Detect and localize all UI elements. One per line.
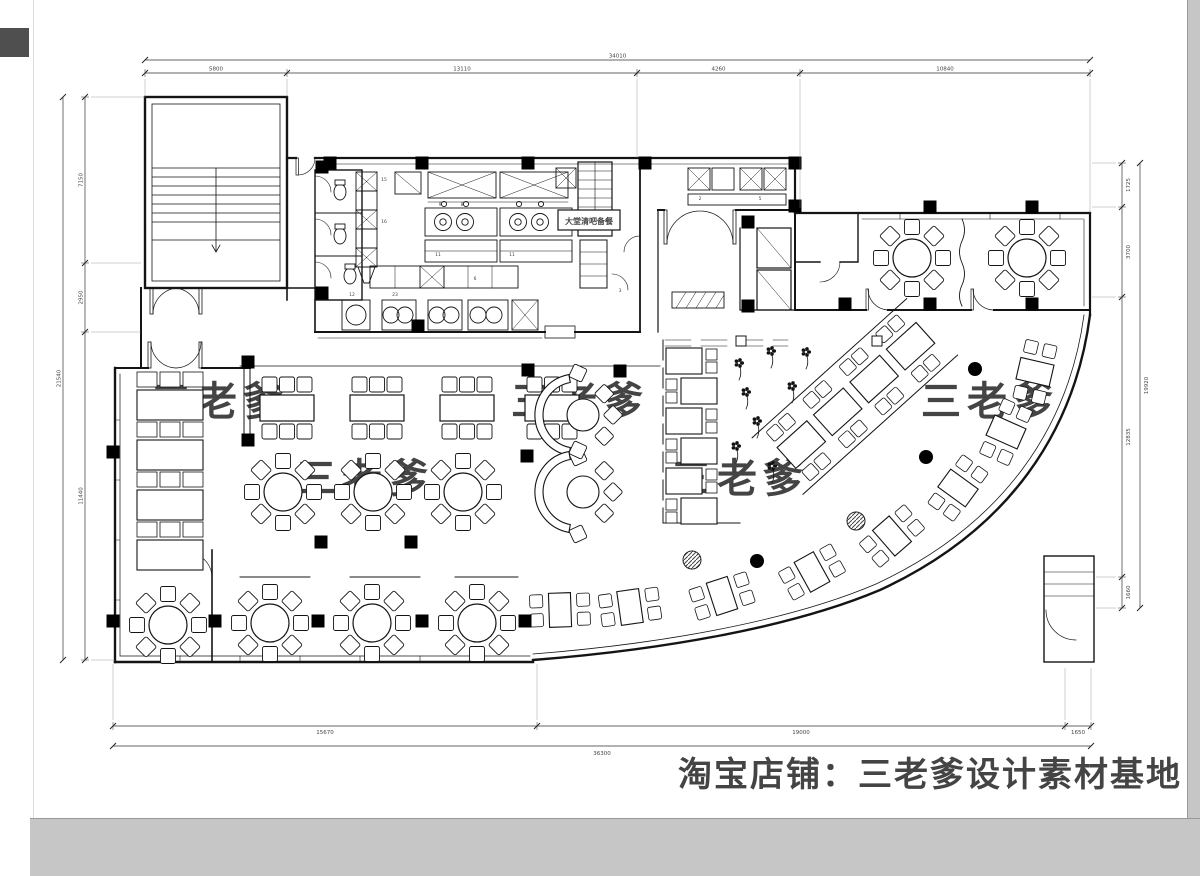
column-square bbox=[242, 356, 255, 369]
svg-text:21540: 21540 bbox=[57, 369, 63, 387]
half-round-booth bbox=[535, 441, 623, 544]
svg-text:23: 23 bbox=[392, 292, 398, 298]
svg-text:2950: 2950 bbox=[79, 290, 85, 304]
wall-booth bbox=[137, 472, 203, 520]
center-booth bbox=[666, 408, 717, 434]
plant bbox=[735, 358, 744, 380]
round-table bbox=[334, 585, 411, 662]
plant bbox=[742, 387, 751, 409]
svg-text:36300: 36300 bbox=[593, 751, 611, 757]
column-square bbox=[742, 300, 755, 313]
column-square bbox=[316, 161, 329, 174]
svg-text:1650: 1650 bbox=[1071, 730, 1085, 736]
round-table bbox=[335, 454, 412, 531]
desktop-bottom-strip bbox=[30, 818, 1200, 876]
column-white bbox=[736, 336, 746, 346]
floor-mat bbox=[672, 292, 724, 308]
toilet-fixture bbox=[334, 224, 346, 244]
door-leaf bbox=[150, 288, 153, 314]
wall-booth bbox=[137, 372, 203, 420]
svg-text:15: 15 bbox=[381, 177, 387, 183]
column-square bbox=[789, 200, 802, 213]
svg-text:19920: 19920 bbox=[1144, 376, 1150, 394]
center-booth bbox=[666, 438, 717, 464]
dimension-chain-h: 1567019000165036300 bbox=[110, 664, 1094, 757]
door-leaf bbox=[199, 288, 202, 314]
svg-text:11: 11 bbox=[509, 252, 515, 258]
floor-plan-drawing: 三老爹三老爹三老爹三老爹三老爹 bbox=[0, 0, 1200, 876]
column-square bbox=[416, 615, 429, 628]
plant bbox=[802, 347, 811, 369]
svg-text:5: 5 bbox=[759, 196, 762, 202]
kitchen-equipment bbox=[342, 168, 786, 330]
svg-text:2: 2 bbox=[699, 196, 702, 202]
desktop-right-strip bbox=[1187, 0, 1200, 876]
column-square bbox=[315, 536, 328, 549]
svg-text:19000: 19000 bbox=[792, 730, 810, 736]
round-table bbox=[232, 585, 309, 662]
double-door-arc bbox=[667, 211, 733, 244]
svg-text:9: 9 bbox=[439, 202, 442, 208]
curtain-divider bbox=[960, 219, 965, 306]
door-leaf bbox=[148, 342, 151, 368]
column-square bbox=[924, 201, 937, 214]
curve-booth bbox=[598, 586, 662, 628]
pass-counter bbox=[545, 326, 575, 338]
column-square bbox=[107, 446, 120, 459]
column-square bbox=[519, 615, 532, 628]
column-round bbox=[968, 362, 982, 376]
svg-text:1725: 1725 bbox=[1126, 178, 1132, 192]
wc-door-arcs bbox=[315, 176, 331, 278]
plant bbox=[767, 346, 776, 368]
toilet-fixture bbox=[334, 180, 346, 200]
wall-booth bbox=[137, 522, 203, 570]
dining-table-rect bbox=[350, 377, 404, 439]
column-square bbox=[742, 216, 755, 229]
corner-chip bbox=[0, 28, 29, 57]
column-square bbox=[839, 298, 852, 311]
svg-text:11440: 11440 bbox=[79, 487, 85, 505]
svg-text:34010: 34010 bbox=[609, 54, 627, 60]
svg-text:13110: 13110 bbox=[453, 67, 471, 73]
dining-table-rect bbox=[260, 377, 314, 439]
svg-text:3700: 3700 bbox=[1126, 245, 1132, 259]
room-label-text: 大堂清吧备餐 bbox=[565, 216, 614, 226]
round-table bbox=[439, 585, 516, 662]
svg-text:6: 6 bbox=[474, 276, 477, 282]
plant bbox=[753, 416, 762, 438]
dimension-chain-v: 715029501144021540 bbox=[57, 94, 146, 663]
svg-text:12835: 12835 bbox=[1126, 428, 1132, 446]
column-square bbox=[789, 157, 802, 170]
double-door-arc bbox=[151, 342, 201, 368]
door-leaf bbox=[664, 210, 667, 244]
column-square bbox=[1026, 201, 1039, 214]
wall-booth bbox=[137, 422, 203, 470]
curve-booth bbox=[927, 454, 990, 523]
double-door-arc bbox=[153, 288, 199, 314]
column-square bbox=[405, 536, 418, 549]
svg-text:5800: 5800 bbox=[209, 67, 223, 73]
column-square bbox=[1026, 298, 1039, 311]
svg-text:3: 3 bbox=[619, 288, 622, 294]
column-round bbox=[919, 450, 933, 464]
round-table bbox=[425, 454, 502, 531]
svg-text:15670: 15670 bbox=[316, 730, 334, 736]
service-room-wall bbox=[795, 213, 858, 262]
column-square bbox=[209, 615, 222, 628]
wok-range bbox=[425, 208, 497, 236]
shop-watermark-text: 淘宝店铺：三老爹设计素材基地 bbox=[678, 755, 1182, 795]
center-booth bbox=[666, 498, 717, 524]
center-booth bbox=[666, 378, 717, 404]
sheet-edge-line bbox=[33, 0, 34, 818]
column-round-hatched bbox=[683, 551, 701, 569]
column-square bbox=[522, 157, 535, 170]
column-square bbox=[312, 615, 325, 628]
column-square bbox=[614, 365, 627, 378]
plant bbox=[788, 381, 797, 403]
dimension-chain-v: 1725370012835166019920 bbox=[1092, 160, 1150, 611]
round-table bbox=[989, 220, 1066, 297]
column-white bbox=[872, 336, 882, 346]
round-table bbox=[130, 587, 207, 664]
stair-direction-arrow bbox=[212, 168, 220, 252]
center-booth bbox=[666, 348, 717, 374]
curve-booth bbox=[688, 571, 756, 622]
svg-text:16: 16 bbox=[381, 219, 387, 225]
door-leaf bbox=[733, 210, 736, 244]
toilet-fixture bbox=[344, 264, 356, 284]
column-square bbox=[639, 157, 652, 170]
svg-text:8: 8 bbox=[461, 202, 464, 208]
column-square bbox=[416, 157, 429, 170]
svg-text:4260: 4260 bbox=[712, 67, 726, 73]
dimension-chain-h: 58001311042601084034010 bbox=[142, 54, 1093, 214]
curve-booth bbox=[778, 543, 847, 602]
svg-text:10840: 10840 bbox=[936, 67, 954, 73]
image-viewer-canvas: 三老爹三老爹三老爹三老爹三老爹 bbox=[0, 0, 1200, 876]
svg-text:12: 12 bbox=[349, 292, 355, 298]
column-square bbox=[412, 320, 425, 333]
svg-text:1660: 1660 bbox=[1126, 585, 1132, 599]
svg-text:7150: 7150 bbox=[79, 173, 85, 187]
column-square bbox=[924, 298, 937, 311]
round-table bbox=[245, 454, 322, 531]
column-square bbox=[316, 287, 329, 300]
dining-table-rect bbox=[440, 377, 494, 439]
svg-text:11: 11 bbox=[435, 252, 441, 258]
column-square bbox=[522, 364, 535, 377]
column-round-hatched bbox=[847, 512, 865, 530]
curve-booth bbox=[858, 503, 926, 568]
column-square bbox=[521, 450, 534, 463]
column-square bbox=[107, 615, 120, 628]
column-square bbox=[242, 434, 255, 447]
curve-booth bbox=[529, 592, 590, 628]
column-round bbox=[750, 554, 764, 568]
round-table bbox=[874, 220, 951, 297]
